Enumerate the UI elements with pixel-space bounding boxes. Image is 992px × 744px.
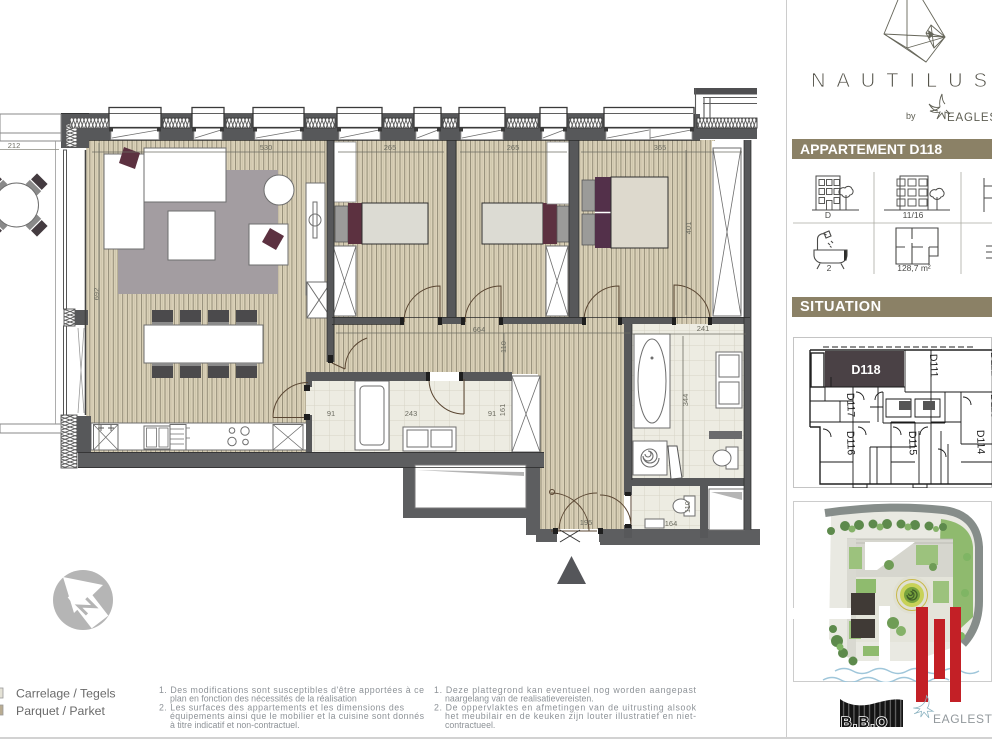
svg-text:11/16: 11/16	[903, 210, 924, 220]
svg-text:164: 164	[665, 519, 678, 528]
svg-text:195: 195	[580, 518, 593, 527]
svg-text:128,7 m²: 128,7 m²	[897, 263, 931, 273]
svg-text:692: 692	[92, 288, 101, 301]
svg-text:91: 91	[327, 409, 335, 418]
svg-text:243: 243	[405, 409, 418, 418]
svg-text:344: 344	[681, 394, 690, 407]
svg-text:365: 365	[654, 143, 667, 152]
svg-text:D111: D111	[927, 354, 940, 378]
svg-text:265: 265	[507, 143, 520, 152]
svg-text:91: 91	[488, 409, 496, 418]
svg-text:212: 212	[8, 141, 21, 150]
svg-text:D118: D118	[851, 363, 880, 377]
svg-text:110: 110	[683, 501, 692, 513]
svg-text:241: 241	[697, 324, 710, 333]
svg-text:Carrelage / Tegels: Carrelage / Tegels	[16, 687, 116, 701]
svg-text:D115: D115	[906, 431, 919, 456]
svg-text:D: D	[825, 210, 831, 220]
svg-text:D114: D114	[974, 430, 987, 455]
svg-text:Parquet / Parket: Parquet / Parket	[16, 704, 105, 718]
svg-text:110: 110	[499, 341, 508, 353]
svg-text:530: 530	[260, 143, 273, 152]
svg-text:401: 401	[684, 222, 693, 235]
svg-text:265: 265	[384, 143, 397, 152]
svg-text:2: 2	[827, 263, 832, 273]
svg-text:161: 161	[498, 404, 507, 417]
svg-text:contractueel.: contractueel.	[445, 720, 495, 730]
svg-text:D116: D116	[844, 431, 857, 456]
svg-text:D117: D117	[844, 393, 857, 418]
svg-text:à titre indicatif et non-contr: à titre indicatif et non-contractuel.	[170, 720, 300, 730]
svg-text:B.B.O: B.B.O	[841, 715, 889, 730]
